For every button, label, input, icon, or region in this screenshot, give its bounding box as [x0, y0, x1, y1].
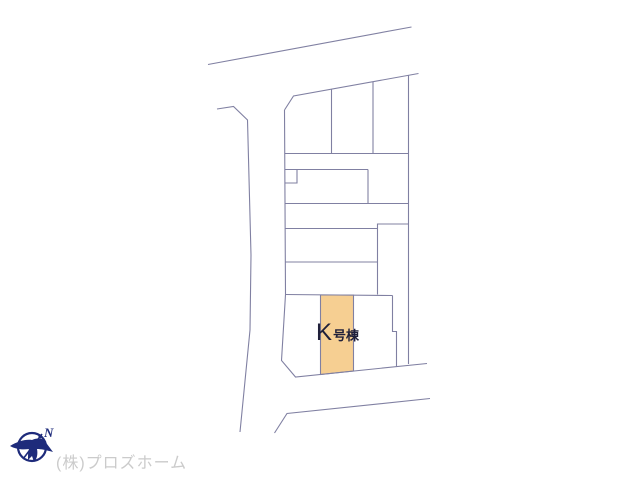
bird-icon [10, 439, 53, 463]
road-edge-bottom [275, 399, 431, 434]
parcel-line [378, 224, 409, 295]
parcel-k-label: K 号棟 [316, 321, 359, 345]
company-watermark: (株)プロズホーム [56, 449, 187, 473]
site-plan-map [0, 0, 640, 480]
road-lines [208, 27, 430, 433]
block-north-boundary [285, 74, 419, 111]
parcel-line [286, 295, 393, 296]
parcel-k-label-letter: K [316, 321, 332, 345]
parcel-line [393, 296, 397, 367]
road-edge-left [217, 107, 251, 433]
site-plan-page: K 号棟 N (株)プロズホーム [0, 0, 640, 480]
road-edge-top [208, 27, 412, 65]
parcel-line [285, 170, 297, 184]
parcel-k-label-suffix: 号棟 [333, 329, 359, 342]
compass-north-letter: N [43, 425, 54, 440]
